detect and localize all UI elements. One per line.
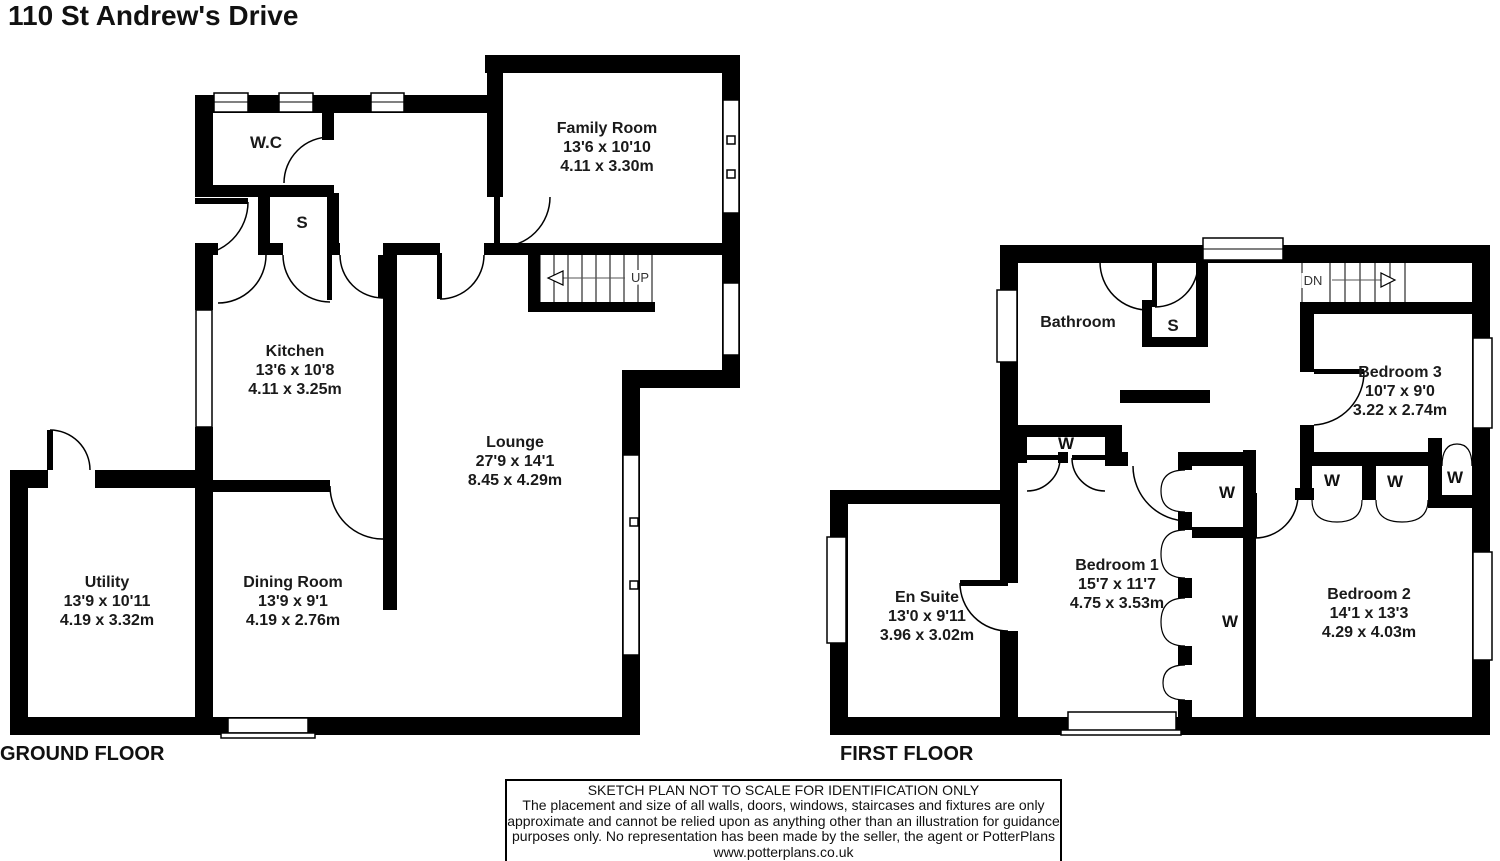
wardrobe-label: W bbox=[1222, 612, 1239, 631]
lounge-size-ft: 27'9 x 14'1 bbox=[476, 453, 555, 470]
ensuite-size-ft: 13'0 x 9'11 bbox=[888, 608, 966, 625]
utility-label: Utility bbox=[85, 574, 130, 591]
window bbox=[997, 290, 1017, 362]
family-room-size-m: 4.11 x 3.30m bbox=[560, 158, 653, 175]
bedroom2-size-ft: 14'1 x 13'3 bbox=[1330, 605, 1409, 622]
bedroom1-size-m: 4.75 x 3.53m bbox=[1070, 595, 1164, 612]
wardrobe-label: W bbox=[1447, 468, 1464, 487]
floorplan-canvas: UP W.C S Family Room 13'6 x 10'10 4.11 x… bbox=[0, 0, 1500, 861]
page-title: 110 St Andrew's Drive bbox=[8, 0, 298, 32]
staircase-down: DN bbox=[1302, 263, 1405, 302]
window bbox=[1473, 338, 1492, 428]
window bbox=[827, 537, 846, 643]
dining-room-size-ft: 13'9 x 9'1 bbox=[258, 593, 328, 610]
wardrobe-door-arc bbox=[1072, 458, 1105, 491]
hall-door-arc bbox=[340, 255, 383, 298]
kitchen-size-m: 4.11 x 3.25m bbox=[248, 381, 341, 398]
dining-door-arc bbox=[330, 486, 383, 539]
bedroom2-size-m: 4.29 x 4.03m bbox=[1322, 624, 1416, 641]
disclaimer-box: SKETCH PLAN NOT TO SCALE FOR IDENTIFICAT… bbox=[505, 779, 1062, 861]
stairs-up-label: UP bbox=[631, 270, 649, 285]
window bbox=[1473, 552, 1492, 660]
kitchen-size-ft: 13'6 x 10'8 bbox=[256, 362, 335, 379]
kitchen-door-arc bbox=[218, 255, 266, 303]
wardrobe-label: W bbox=[1219, 483, 1236, 502]
cupboard-label: S bbox=[1167, 316, 1178, 335]
bedroom3-size-m: 3.22 x 2.74m bbox=[1353, 402, 1447, 419]
cupboard-door-arc bbox=[1155, 264, 1198, 307]
family-room-door-arc bbox=[500, 197, 550, 247]
window bbox=[623, 455, 639, 655]
dining-room-size-m: 4.19 x 2.76m bbox=[246, 612, 340, 629]
window bbox=[228, 718, 308, 733]
wardrobe-label: W bbox=[1387, 472, 1404, 491]
kitchen-label: Kitchen bbox=[266, 343, 325, 360]
ensuite-label: En Suite bbox=[895, 589, 959, 606]
stair-arrow-icon bbox=[1381, 273, 1395, 287]
utility-size-m: 4.19 x 3.32m bbox=[60, 612, 154, 629]
stair-arrow-icon bbox=[548, 271, 563, 285]
wardrobe-label: W bbox=[1058, 434, 1075, 453]
lounge-size-m: 8.45 x 4.29m bbox=[468, 472, 562, 489]
window bbox=[723, 100, 739, 213]
ensuite-door-arc bbox=[960, 583, 1008, 631]
ground-floor-label: GROUND FLOOR bbox=[0, 743, 164, 766]
disclaimer-line: purposes only. No representation has bee… bbox=[507, 829, 1060, 844]
wc-door-arc bbox=[284, 137, 330, 183]
bathroom-door-arc bbox=[1100, 262, 1148, 310]
window bbox=[723, 283, 739, 355]
dining-room-label: Dining Room bbox=[243, 574, 343, 591]
utility-door-arc bbox=[50, 430, 90, 470]
bedroom2-door-arc bbox=[1255, 495, 1298, 538]
cupboard-label: S bbox=[296, 213, 307, 232]
lounge-door-arc bbox=[440, 255, 484, 299]
family-room-size-ft: 13'6 x 10'10 bbox=[563, 139, 651, 156]
bathroom-label: Bathroom bbox=[1040, 314, 1116, 331]
bedroom2-label: Bedroom 2 bbox=[1327, 586, 1411, 603]
cupboard-door-arc bbox=[283, 255, 330, 302]
wardrobe-bifold-doors bbox=[1161, 444, 1472, 700]
staircase-up: UP bbox=[540, 253, 652, 302]
first-floor-plan: DN Bathroom S Bedroom 3 10'7 x 9'0 3.22 … bbox=[827, 238, 1492, 735]
bedroom1-label: Bedroom 1 bbox=[1075, 557, 1159, 574]
wardrobe-label: W bbox=[1324, 471, 1341, 490]
disclaimer-website: www.potterplans.co.uk bbox=[507, 845, 1060, 860]
ensuite-size-m: 3.96 x 3.02m bbox=[880, 627, 974, 644]
wc-label: W.C bbox=[250, 133, 282, 152]
bedroom1-size-ft: 15'7 x 11'7 bbox=[1078, 576, 1156, 593]
front-door-leaf bbox=[195, 198, 248, 204]
disclaimer-line: approximate and cannot be relied upon as… bbox=[507, 814, 1060, 829]
bedroom3-size-ft: 10'7 x 9'0 bbox=[1365, 383, 1435, 400]
disclaimer-line: The placement and size of all walls, doo… bbox=[507, 798, 1060, 813]
first-floor-room-labels: Bathroom S Bedroom 3 10'7 x 9'0 3.22 x 2… bbox=[880, 314, 1464, 644]
utility-door-leaf bbox=[47, 430, 53, 470]
utility-size-ft: 13'9 x 10'11 bbox=[64, 593, 151, 610]
ground-floor-room-labels: W.C S Family Room 13'6 x 10'10 4.11 x 3.… bbox=[60, 120, 657, 629]
family-room-label: Family Room bbox=[557, 120, 657, 137]
first-floor-label: FIRST FLOOR bbox=[840, 743, 973, 766]
wardrobe-door-arc bbox=[1027, 458, 1060, 491]
bedroom3-label: Bedroom 3 bbox=[1358, 364, 1442, 381]
disclaimer-line: SKETCH PLAN NOT TO SCALE FOR IDENTIFICAT… bbox=[507, 783, 1060, 798]
window bbox=[196, 310, 212, 427]
ground-floor-plan: UP W.C S Family Room 13'6 x 10'10 4.11 x… bbox=[10, 55, 740, 738]
lounge-label: Lounge bbox=[486, 434, 544, 451]
floorplan-drawing: UP W.C S Family Room 13'6 x 10'10 4.11 x… bbox=[0, 0, 1500, 861]
stairs-down-label: DN bbox=[1304, 273, 1323, 288]
